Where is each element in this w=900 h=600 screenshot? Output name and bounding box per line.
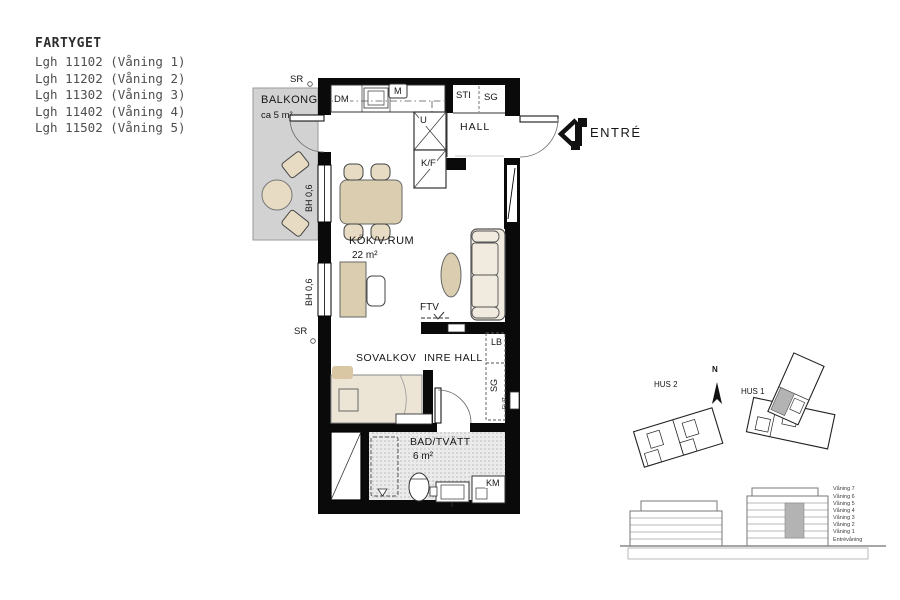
balcony-table xyxy=(262,180,292,210)
marker-sr-top: SR xyxy=(290,75,303,85)
marker-ftv: FTV xyxy=(420,303,439,313)
sleeping-alcove-label: SOVALKOV xyxy=(356,353,416,364)
floor-plan-page: FARTYGET Lgh 11102 (Våning 1) Lgh 11202 … xyxy=(0,0,900,600)
hus2-building xyxy=(634,408,723,467)
hus2-label: HUS 2 xyxy=(654,381,678,389)
apartment-line: Lgh 11402 (Våning 4) xyxy=(35,104,186,121)
marker-u: U xyxy=(419,116,428,126)
site-plan xyxy=(634,353,835,467)
desk xyxy=(340,262,366,317)
floor-label: Våning 5 xyxy=(833,502,855,508)
balcony-door xyxy=(290,115,324,121)
apartment-line: Lgh 11202 (Våning 2) xyxy=(35,71,186,88)
entry-arrow-icon xyxy=(561,118,587,150)
bathroom-label: BAD/TVÄTT xyxy=(410,437,470,448)
marker-dm: DM xyxy=(333,95,350,105)
el-it-cabinet xyxy=(510,392,519,409)
floor-label: Våning 1 xyxy=(833,530,855,536)
toilet xyxy=(409,473,429,501)
marker-kf: K/F xyxy=(420,159,437,169)
north-arrow-icon xyxy=(712,382,722,404)
balcony-label: BALKONG xyxy=(261,95,318,106)
entrance-label: ENTRÉ xyxy=(590,126,642,139)
kitchen-living-area: 22 m² xyxy=(352,251,378,261)
pillow xyxy=(332,366,353,379)
floor-label: Våning 3 xyxy=(833,516,855,522)
bathroom-area: 6 m² xyxy=(413,452,433,462)
dining-table xyxy=(340,180,402,224)
marker-el-it: EL/IT xyxy=(503,397,508,409)
apartment-line: Lgh 11102 (Våning 1) xyxy=(35,54,186,71)
hall-label: HALL xyxy=(460,122,490,133)
floor-label: Våning 7 xyxy=(833,487,855,493)
north-label: N xyxy=(712,366,718,374)
apartment-line: Lgh 11502 (Våning 5) xyxy=(35,120,186,137)
sr-valve-icon xyxy=(308,82,313,87)
marker-lb: LB xyxy=(490,338,503,347)
marker-sg-inner: SG xyxy=(490,378,499,393)
coffee-table xyxy=(441,253,461,297)
wall-niche xyxy=(448,324,465,332)
apartment-line: Lgh 11302 (Våning 3) xyxy=(35,87,186,104)
sr-valve-icon xyxy=(311,339,316,344)
hus1-label: HUS 1 xyxy=(741,388,765,396)
floor-label: Våning 6 xyxy=(833,495,855,501)
marker-m: M xyxy=(394,87,402,96)
marker-km: KM xyxy=(485,479,501,488)
highlighted-floors xyxy=(785,503,804,538)
dining-chair xyxy=(344,164,363,180)
floor-label: Våning 4 xyxy=(833,509,855,515)
marker-sti: STI xyxy=(456,91,471,101)
bathroom-door xyxy=(435,388,441,423)
desk-chair xyxy=(367,276,385,306)
bench xyxy=(396,414,432,424)
balcony-area: ca 5 m² xyxy=(261,111,293,121)
marker-sg-hall: SG xyxy=(484,93,498,103)
title-block: FARTYGET Lgh 11102 (Våning 1) Lgh 11202 … xyxy=(35,36,186,137)
project-title: FARTYGET xyxy=(35,36,186,51)
floor-label: Våning 2 xyxy=(833,523,855,529)
marker-bh-lower: BH 0,6 xyxy=(305,278,314,306)
marker-bh-upper: BH 0,6 xyxy=(305,184,314,212)
entrance-door xyxy=(520,116,558,122)
dining-chair xyxy=(371,164,390,180)
floor-label: Entrévåning xyxy=(833,538,862,544)
kitchen-living-label: KÖK/V.RUM xyxy=(349,236,414,247)
inner-hall-label: INRE HALL xyxy=(424,353,483,364)
marker-sr-left: SR xyxy=(294,327,307,337)
